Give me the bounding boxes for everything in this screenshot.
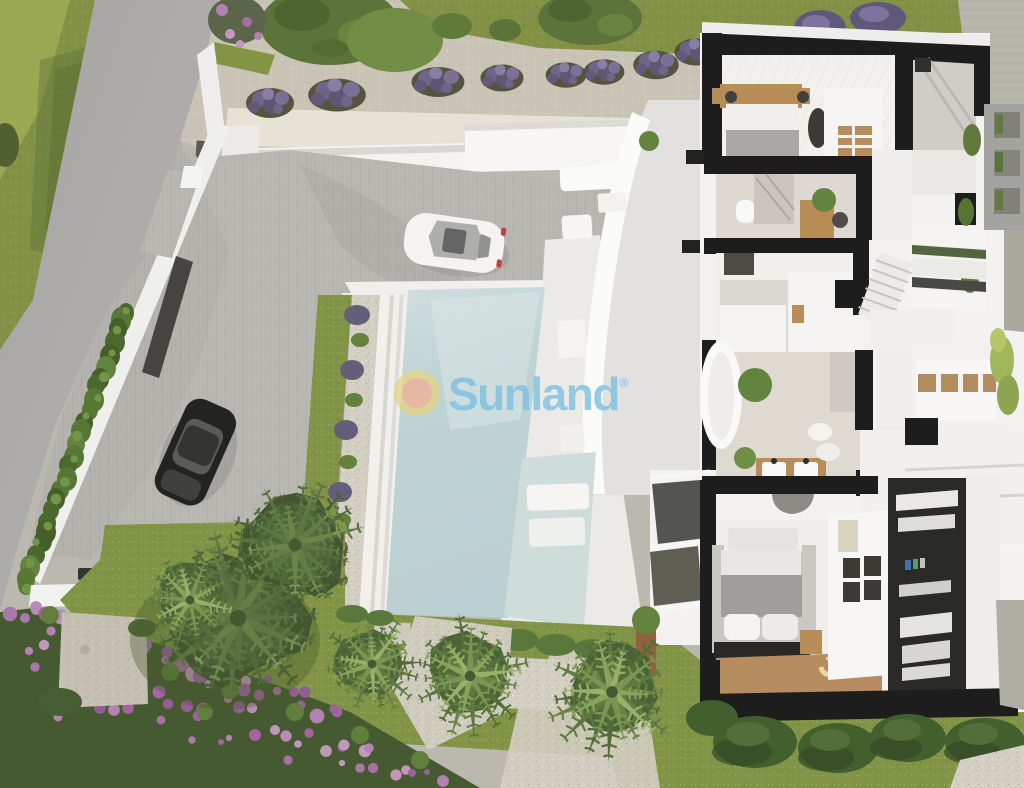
svg-text:Sunland: Sunland bbox=[448, 368, 619, 420]
svg-text:®: ® bbox=[619, 375, 629, 390]
